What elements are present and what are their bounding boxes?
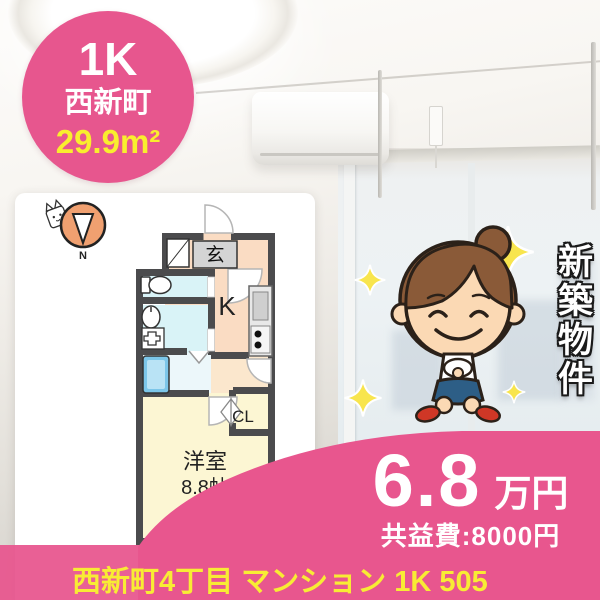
property-address: 西新町4丁目 マンション 1K 505 — [72, 558, 592, 600]
badge-town-name: 西新町 — [64, 89, 151, 118]
shoe — [475, 404, 502, 424]
shoe — [415, 404, 442, 424]
sparkle-icon — [355, 265, 385, 295]
sparkle-icon — [345, 380, 382, 417]
badge-floor-area: 29.9m² — [56, 125, 161, 158]
property-badge: 1K 西新町 29.9m² — [22, 11, 194, 183]
price-unit: 万円 — [494, 475, 568, 512]
badge-layout-type: 1K — [79, 36, 138, 82]
price-amount: 6.8 — [373, 444, 482, 518]
listing-card: N バルコニー — [0, 0, 600, 600]
girl-illustration — [392, 227, 524, 424]
hands — [453, 368, 463, 378]
common-fee: 共益費:8000円 — [348, 516, 593, 553]
new-building-banner: 新築物件 — [550, 243, 594, 399]
price-block: 6.8 万円 — [348, 444, 593, 518]
mascot-girl — [338, 202, 538, 434]
sparkle-icon — [503, 381, 525, 403]
